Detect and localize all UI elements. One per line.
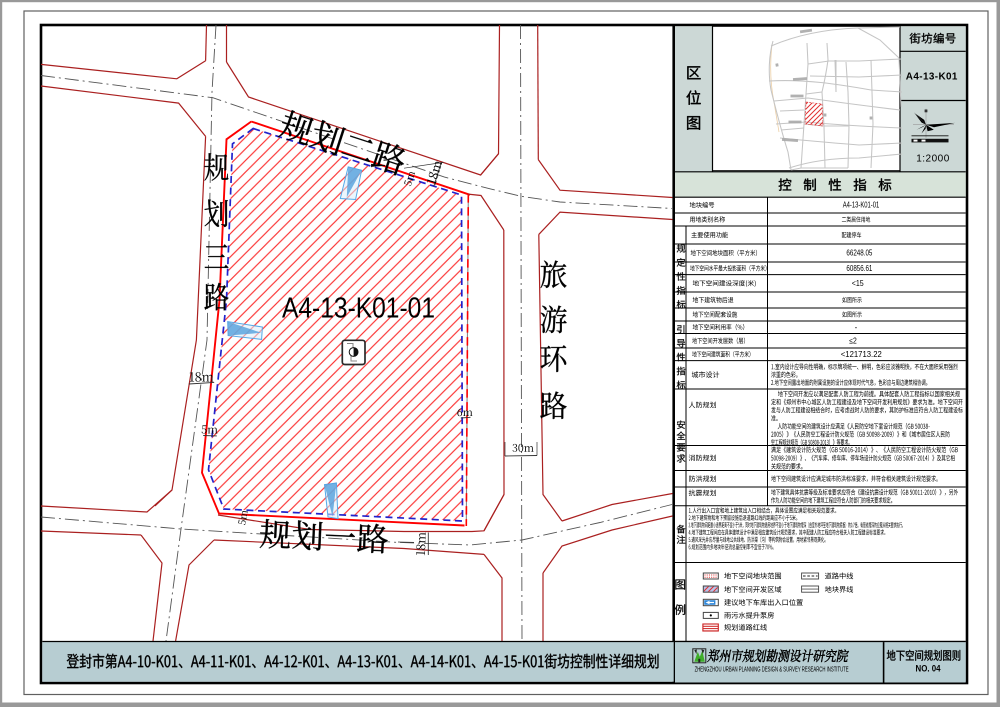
svg-text:A4-13-K01-01: A4-13-K01-01 <box>282 293 435 325</box>
svg-text:-: - <box>855 323 858 332</box>
svg-text:≤2: ≤2 <box>849 337 857 346</box>
svg-text:66248.05: 66248.05 <box>846 249 872 258</box>
svg-text:ZHENGZHOU URBAN PLANNING DESIG: ZHENGZHOU URBAN PLANNING DESIGN & SURVEY… <box>695 665 849 674</box>
svg-text:A4-13-K01: A4-13-K01 <box>906 72 958 83</box>
svg-text:A4-13-K01-01: A4-13-K01-01 <box>843 201 880 210</box>
svg-text:60856.61: 60856.61 <box>846 264 872 273</box>
svg-text:<121713.22: <121713.22 <box>841 349 882 359</box>
svg-text:NO. 04: NO. 04 <box>916 663 942 674</box>
svg-text:<15: <15 <box>852 278 864 288</box>
svg-text:1:2000: 1:2000 <box>916 154 950 165</box>
